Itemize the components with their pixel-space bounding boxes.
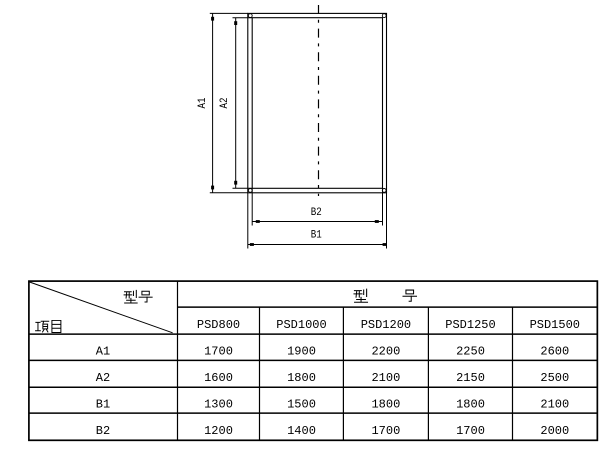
svg-text:2200: 2200 bbox=[371, 344, 400, 358]
svg-text:B1: B1 bbox=[311, 230, 322, 242]
svg-text:1700: 1700 bbox=[456, 424, 485, 438]
svg-text:PSD1250: PSD1250 bbox=[445, 318, 495, 332]
svg-text:1700: 1700 bbox=[204, 344, 233, 358]
svg-text:PSD1200: PSD1200 bbox=[361, 318, 411, 332]
svg-text:1300: 1300 bbox=[204, 397, 233, 411]
svg-text:1600: 1600 bbox=[204, 371, 233, 385]
svg-text:1400: 1400 bbox=[287, 424, 316, 438]
svg-text:PSD800: PSD800 bbox=[197, 318, 240, 332]
svg-text:1200: 1200 bbox=[204, 424, 233, 438]
svg-text:2100: 2100 bbox=[371, 371, 400, 385]
svg-text:2100: 2100 bbox=[540, 397, 569, 411]
svg-text:PSD1000: PSD1000 bbox=[276, 318, 326, 332]
svg-text:1700: 1700 bbox=[371, 424, 400, 438]
svg-text:B1: B1 bbox=[96, 397, 110, 411]
svg-text:A2: A2 bbox=[96, 371, 110, 385]
svg-text:1800: 1800 bbox=[456, 397, 485, 411]
svg-text:2250: 2250 bbox=[456, 344, 485, 358]
svg-text:A1: A1 bbox=[197, 97, 209, 108]
svg-text:A2: A2 bbox=[219, 98, 231, 109]
svg-text:B2: B2 bbox=[311, 207, 322, 219]
svg-text:B2: B2 bbox=[96, 424, 110, 438]
svg-text:1800: 1800 bbox=[371, 397, 400, 411]
svg-text:2000: 2000 bbox=[540, 424, 569, 438]
svg-text:A1: A1 bbox=[96, 344, 110, 358]
svg-text:PSD1500: PSD1500 bbox=[530, 318, 580, 332]
svg-text:2600: 2600 bbox=[540, 344, 569, 358]
svg-text:2500: 2500 bbox=[540, 371, 569, 385]
svg-text:2150: 2150 bbox=[456, 371, 485, 385]
svg-text:1900: 1900 bbox=[287, 344, 316, 358]
svg-text:1800: 1800 bbox=[287, 371, 316, 385]
svg-text:1500: 1500 bbox=[287, 397, 316, 411]
